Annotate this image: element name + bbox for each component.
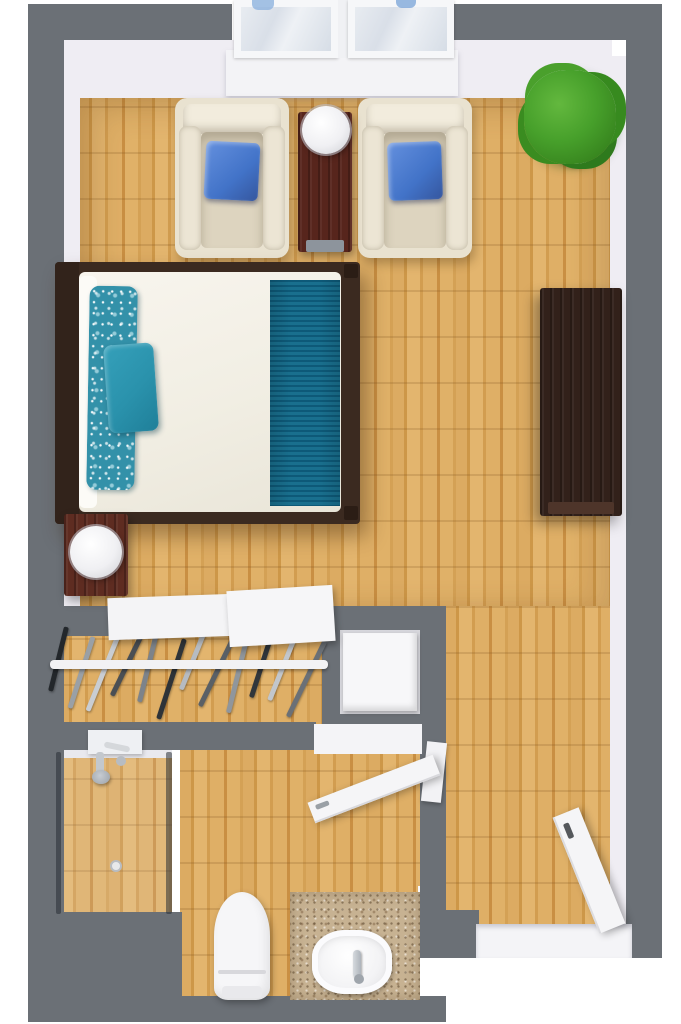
shower-glass-right bbox=[166, 752, 172, 914]
blue-throw-pillow bbox=[204, 141, 261, 202]
bath-door-header bbox=[314, 724, 422, 754]
blue-throw-pillow bbox=[387, 141, 443, 201]
armchair-arm bbox=[263, 126, 285, 250]
outer-wall-right bbox=[626, 4, 662, 958]
shower-head bbox=[92, 770, 110, 784]
wall-bathroom-top bbox=[28, 722, 316, 750]
toilet-base bbox=[222, 986, 262, 998]
side-table-base bbox=[306, 240, 344, 252]
sink-faucet-handle bbox=[354, 974, 364, 984]
wall-entry-chunk bbox=[445, 910, 479, 958]
window-left-reflection bbox=[252, 0, 274, 10]
bed-headboard bbox=[55, 262, 79, 524]
window-right-glass bbox=[355, 7, 447, 51]
shower-drain bbox=[110, 860, 122, 872]
window-right bbox=[348, 0, 454, 58]
door-handle bbox=[315, 800, 330, 810]
closet-shelf bbox=[226, 585, 335, 647]
armchair-arm bbox=[446, 126, 468, 250]
dresser-base bbox=[548, 502, 614, 514]
window-left-glass bbox=[241, 7, 331, 51]
bed-post bbox=[344, 506, 358, 520]
armchair-arm bbox=[362, 126, 384, 250]
shower-fixture-panel bbox=[88, 730, 142, 754]
potted-plant bbox=[524, 70, 616, 164]
niche-cabinet bbox=[343, 633, 417, 711]
door-handle bbox=[563, 822, 575, 839]
window-mullion bbox=[338, 0, 348, 58]
armchair-arm bbox=[179, 126, 201, 250]
nightstand-lamp bbox=[70, 526, 122, 578]
floor-plan bbox=[0, 0, 681, 1024]
vanity-sink bbox=[312, 930, 392, 994]
window-right-reflection bbox=[396, 0, 416, 8]
toilet-seat-seam bbox=[218, 970, 266, 974]
bed-runner bbox=[270, 280, 340, 506]
accent-pillow bbox=[103, 342, 159, 433]
armchair-right bbox=[358, 98, 472, 258]
window-left bbox=[234, 0, 338, 58]
shower-glass-left bbox=[56, 752, 61, 914]
toilet bbox=[214, 892, 270, 1000]
closet-shelf bbox=[107, 594, 236, 640]
armchair-left bbox=[175, 98, 289, 258]
table-lamp bbox=[302, 106, 350, 154]
bed-post bbox=[344, 264, 358, 278]
shower-knob bbox=[116, 756, 126, 766]
dresser bbox=[540, 288, 622, 516]
hanger bbox=[48, 626, 69, 691]
outer-wall-bottom-shower bbox=[28, 912, 182, 1008]
closet-rod bbox=[50, 660, 328, 669]
